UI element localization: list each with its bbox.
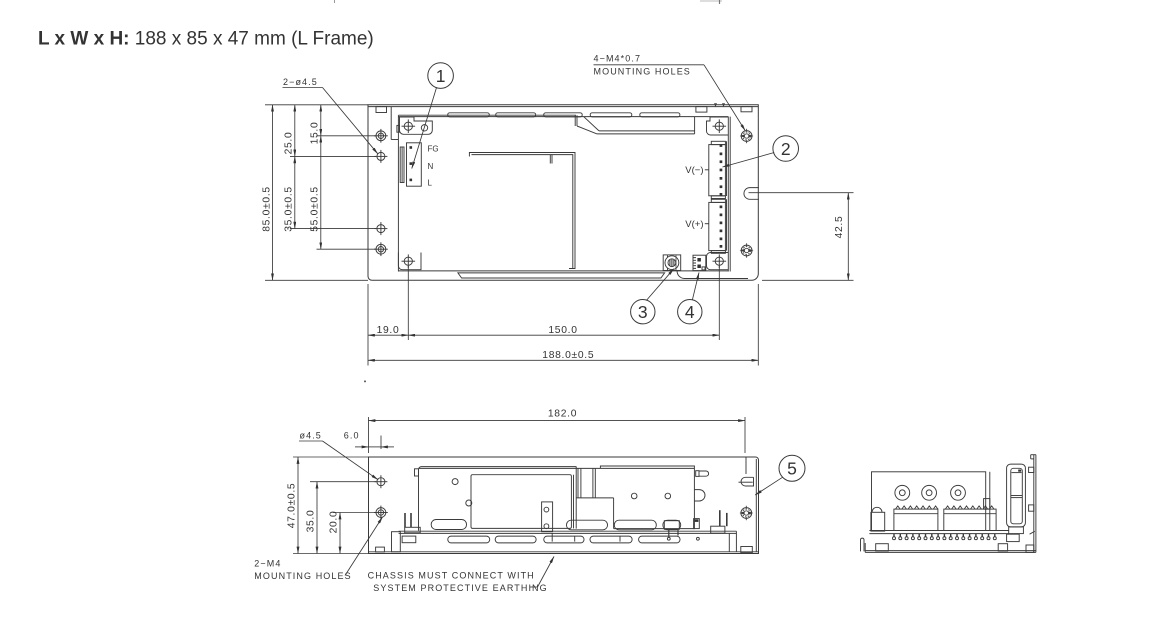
svg-text:150.0: 150.0 bbox=[548, 325, 577, 336]
svg-text:15.0: 15.0 bbox=[310, 122, 321, 145]
svg-text:MOUNTING HOLES: MOUNTING HOLES bbox=[594, 67, 691, 77]
svg-text:19.0: 19.0 bbox=[377, 325, 400, 336]
svg-text:20.0: 20.0 bbox=[329, 511, 340, 534]
svg-text:25.0: 25.0 bbox=[284, 132, 295, 155]
svg-text:85.0±0.5: 85.0±0.5 bbox=[262, 186, 273, 232]
svg-text:5: 5 bbox=[787, 459, 797, 479]
svg-text:CHASSIS MUST CONNECT WITH: CHASSIS MUST CONNECT WITH bbox=[368, 571, 535, 581]
svg-text:4−M4*0.7: 4−M4*0.7 bbox=[594, 54, 642, 64]
svg-text:3: 3 bbox=[638, 302, 648, 322]
svg-text:35.0: 35.0 bbox=[306, 510, 317, 533]
svg-text:55.0±0.5: 55.0±0.5 bbox=[310, 186, 321, 232]
svg-text:47.0±0.5: 47.0±0.5 bbox=[287, 483, 298, 529]
svg-text:6.0: 6.0 bbox=[344, 431, 360, 441]
svg-text:FG: FG bbox=[428, 145, 439, 154]
svg-text:2−M4: 2−M4 bbox=[254, 559, 281, 569]
svg-text:L x W x H: 188 x 85 x 47 mm (L: L x W x H: 188 x 85 x 47 mm (L Frame) bbox=[38, 29, 374, 50]
svg-text:SYSTEM PROTECTIVE EARTHING: SYSTEM PROTECTIVE EARTHING bbox=[373, 583, 547, 593]
svg-text:MOUNTING HOLES: MOUNTING HOLES bbox=[254, 571, 351, 581]
svg-text:35.0±0.5: 35.0±0.5 bbox=[284, 186, 295, 232]
svg-text:2: 2 bbox=[781, 139, 791, 159]
svg-text:188.0±0.5: 188.0±0.5 bbox=[542, 350, 594, 361]
svg-text:182.0: 182.0 bbox=[548, 408, 577, 419]
svg-text:L: L bbox=[428, 179, 433, 188]
svg-text:V(−): V(−) bbox=[685, 165, 703, 176]
svg-text:1: 1 bbox=[436, 66, 446, 86]
svg-text:2−ø4.5: 2−ø4.5 bbox=[283, 77, 318, 87]
svg-text:4: 4 bbox=[685, 302, 695, 322]
svg-text:N: N bbox=[428, 162, 434, 171]
svg-text:ø4.5: ø4.5 bbox=[300, 431, 322, 441]
svg-text:42.5: 42.5 bbox=[834, 216, 845, 239]
svg-text:V(+): V(+) bbox=[685, 219, 703, 230]
